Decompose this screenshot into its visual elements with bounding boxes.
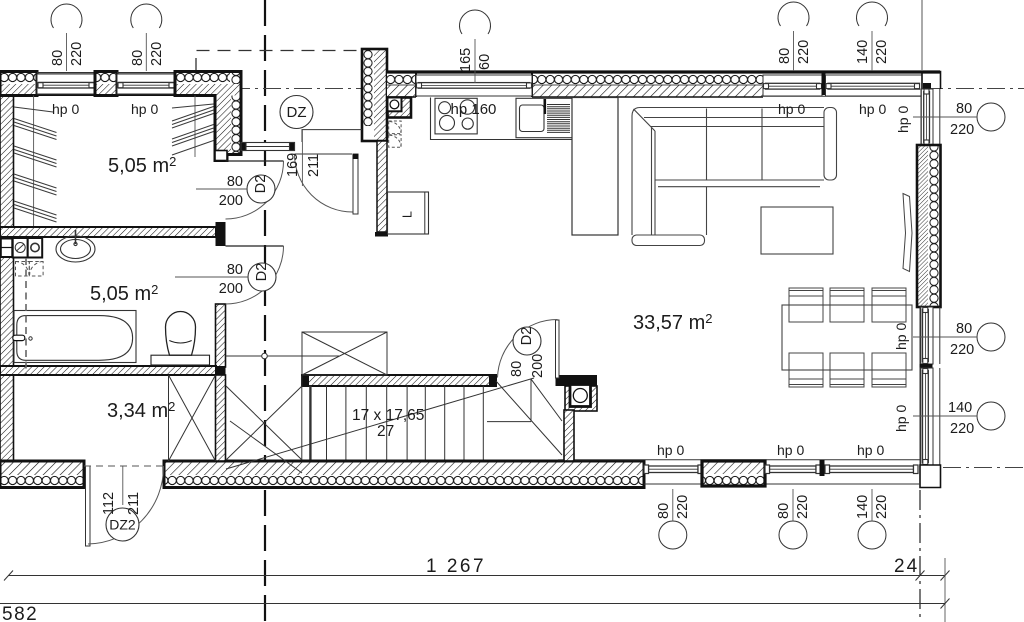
svg-text:220: 220 (675, 495, 691, 519)
svg-text:140: 140 (855, 495, 871, 519)
svg-text:220: 220 (796, 40, 812, 64)
svg-text:3,34 m2: 3,34 m2 (107, 399, 175, 422)
svg-text:17 x 17,65: 17 x 17,65 (352, 407, 424, 424)
svg-text:hp 0: hp 0 (859, 101, 886, 117)
svg-text:211: 211 (306, 154, 322, 177)
svg-text:80: 80 (777, 48, 793, 64)
svg-text:hp 0: hp 0 (778, 101, 805, 117)
svg-text:165: 165 (458, 48, 474, 72)
svg-text:80: 80 (776, 503, 792, 519)
svg-text:DZ: DZ (287, 104, 307, 121)
svg-text:hp 0: hp 0 (52, 101, 79, 117)
svg-text:hp 160: hp 160 (451, 101, 497, 118)
svg-text:hp 0: hp 0 (131, 101, 158, 117)
svg-text:hp 0: hp 0 (893, 323, 909, 350)
svg-text:hp 0: hp 0 (893, 405, 909, 432)
svg-text:80: 80 (656, 503, 672, 519)
svg-text:D2: D2 (254, 263, 270, 282)
svg-text:hp 0: hp 0 (777, 442, 804, 458)
svg-text:5,05 m2: 5,05 m2 (90, 282, 158, 305)
svg-text:80: 80 (50, 50, 66, 66)
svg-text:220: 220 (69, 42, 85, 66)
svg-text:80: 80 (227, 174, 243, 190)
svg-text:24: 24 (894, 556, 919, 577)
svg-text:582: 582 (2, 604, 38, 622)
svg-text:80: 80 (509, 361, 525, 377)
svg-text:DZ2: DZ2 (109, 517, 136, 533)
svg-text:L: L (400, 211, 414, 218)
svg-text:200: 200 (219, 193, 243, 209)
svg-text:80: 80 (956, 321, 972, 337)
svg-text:60: 60 (477, 54, 493, 70)
svg-text:220: 220 (950, 122, 974, 138)
svg-text:169: 169 (285, 153, 301, 177)
svg-text:220: 220 (874, 495, 890, 519)
svg-text:5,05 m2: 5,05 m2 (108, 154, 176, 177)
svg-text:140: 140 (948, 400, 972, 416)
svg-text:80: 80 (130, 50, 146, 66)
svg-text:80: 80 (227, 262, 243, 278)
svg-text:200: 200 (219, 281, 243, 297)
svg-text:200: 200 (530, 354, 546, 378)
svg-text:27: 27 (377, 423, 394, 440)
svg-text:220: 220 (149, 42, 165, 66)
svg-text:112: 112 (101, 492, 117, 515)
svg-text:140: 140 (855, 40, 871, 64)
svg-text:hp 0: hp 0 (857, 442, 884, 458)
svg-text:220: 220 (874, 40, 890, 64)
svg-text:220: 220 (795, 495, 811, 519)
svg-text:1 267: 1 267 (426, 556, 486, 577)
svg-text:80: 80 (956, 101, 972, 117)
svg-text:33,57 m2: 33,57 m2 (633, 311, 713, 334)
svg-text:220: 220 (950, 342, 974, 358)
svg-text:D2: D2 (253, 175, 269, 194)
svg-text:hp 0: hp 0 (895, 106, 911, 133)
svg-text:hp 0: hp 0 (657, 442, 684, 458)
svg-text:D2: D2 (519, 327, 535, 346)
svg-text:211: 211 (126, 492, 142, 515)
svg-text:220: 220 (950, 421, 974, 437)
